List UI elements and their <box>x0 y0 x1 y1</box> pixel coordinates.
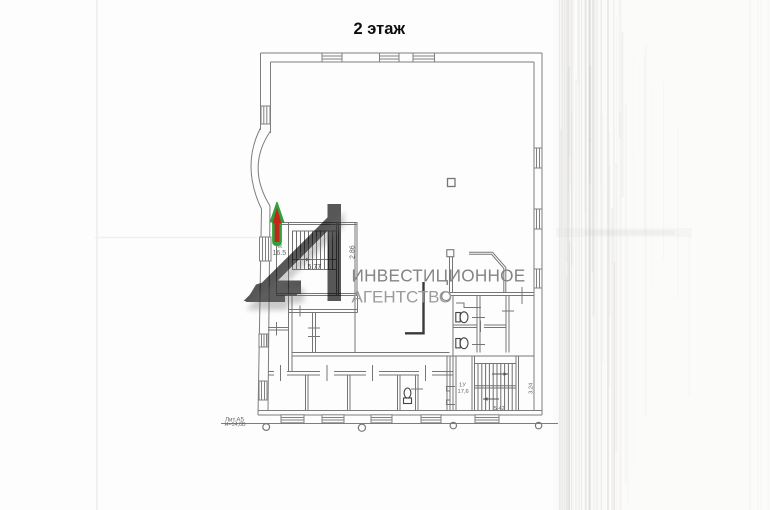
svg-text:Н=14,0В: Н=14,0В <box>225 422 247 428</box>
svg-text:ИНВЕСТИЦИОННОЕ: ИНВЕСТИЦИОННОЕ <box>352 266 526 286</box>
svg-text:5.42: 5.42 <box>494 406 505 412</box>
svg-text:5.77: 5.77 <box>308 264 322 271</box>
svg-text:2.86: 2.86 <box>350 245 357 259</box>
svg-text:АГЕНТСТВО: АГЕНТСТВО <box>352 288 453 307</box>
svg-text:1У: 1У <box>459 383 466 389</box>
svg-text:17,6: 17,6 <box>458 389 469 395</box>
svg-text:3.24: 3.24 <box>529 382 535 394</box>
svg-text:2 этаж: 2 этаж <box>354 20 406 38</box>
svg-text:16.5: 16.5 <box>273 250 287 257</box>
